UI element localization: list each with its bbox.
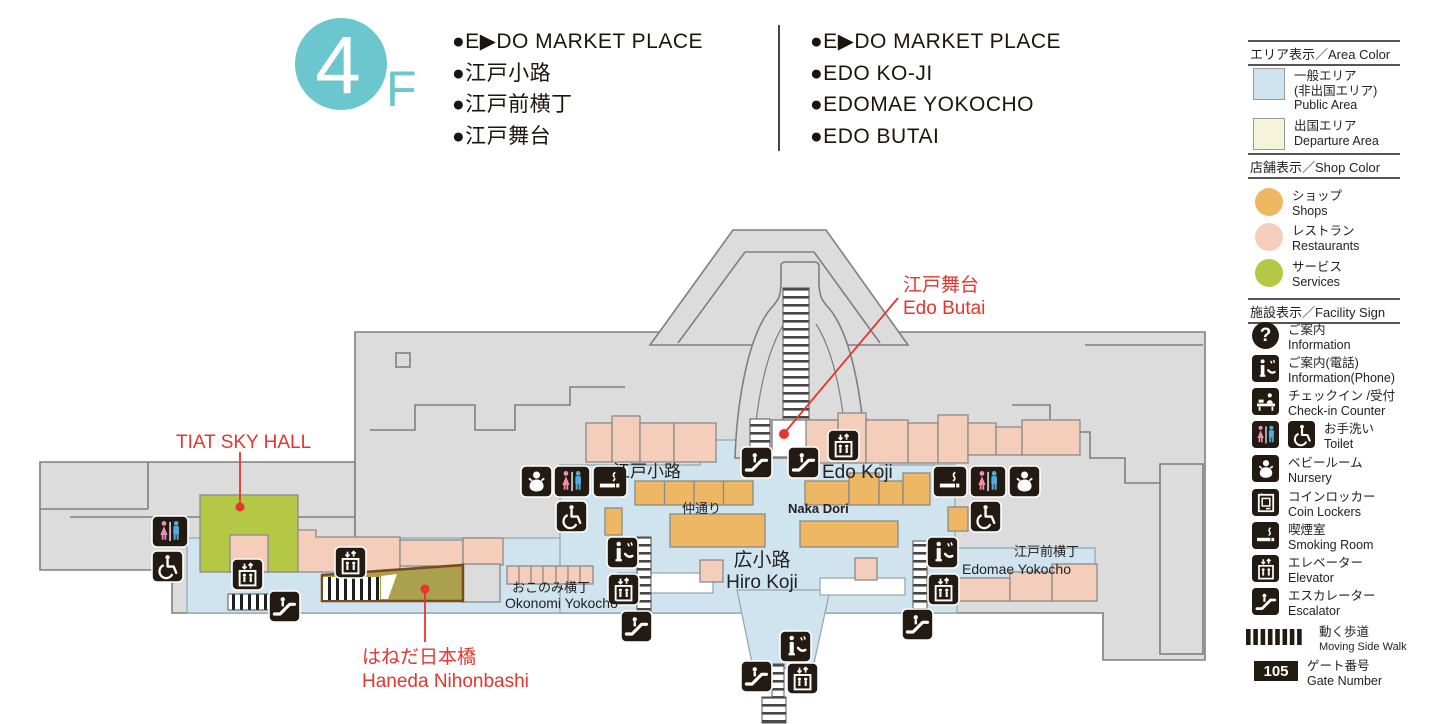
- legend-label: Nursery: [1288, 471, 1363, 486]
- nursery-icon: [521, 466, 552, 497]
- legend-label: Information: [1288, 338, 1351, 353]
- label-naka-dori-en: Naka Dori: [788, 501, 849, 516]
- escalator-icon: [621, 611, 652, 642]
- information-phone-icon: [927, 537, 958, 568]
- legend-label: 一般エリア: [1294, 69, 1377, 84]
- label-naka-dori-ja: 仲通り: [682, 501, 721, 516]
- legend-departure-area: 出国エリア Departure Area: [1253, 118, 1379, 150]
- toilet-icon: [152, 516, 188, 547]
- legend-label: チェックイン /受付: [1288, 389, 1395, 404]
- elevator-icon: [335, 547, 366, 578]
- toilet-icon: [1252, 421, 1279, 448]
- escalator-icon: [902, 609, 933, 640]
- elevator-icon: [828, 430, 859, 461]
- label-okonomi-en: Okonomi Yokocho: [505, 595, 618, 611]
- legend-label: 喫煙室: [1288, 523, 1373, 538]
- header-list-ja: ●E▶DO MARKET PLACE ●江戸小路 ●江戸前横丁 ●江戸舞台: [452, 26, 703, 152]
- callout-nihonbashi-ja: はねだ日本橋: [362, 646, 476, 668]
- legend-toilet: お手洗い Toilet: [1252, 421, 1374, 451]
- toilet-icon: [970, 466, 1006, 497]
- information-phone-icon: [1252, 355, 1279, 382]
- label-hiro-koji-en: Hiro Koji: [726, 572, 798, 593]
- callout-nihonbashi-en: Haneda Nihonbashi: [362, 671, 529, 692]
- label-okonomi-ja: おこのみ横丁: [512, 580, 590, 595]
- legend-label: Information(Phone): [1288, 371, 1395, 386]
- departure-area-swatch: [1253, 118, 1285, 150]
- legend-sidebar: エリア表示／Area Color 一般エリア (非出国エリア) Public A…: [1246, 0, 1440, 724]
- legend-label: Escalator: [1288, 604, 1376, 619]
- escalator-icon: [741, 447, 772, 478]
- legend-label: Shops: [1292, 204, 1342, 219]
- escalator-icon: [788, 447, 819, 478]
- legend-label: Departure Area: [1294, 134, 1379, 149]
- floor-map-page: 4 F ●E▶DO MARKET PLACE ●江戸小路 ●江戸前横丁 ●江戸舞…: [0, 0, 1440, 724]
- legend-elevator: エレベーター Elevator: [1252, 555, 1363, 585]
- legend-coin-lockers: コインロッカー Coin Lockers: [1252, 489, 1376, 519]
- coin-locker-icon: [1252, 489, 1279, 516]
- legend-label: Restaurants: [1292, 239, 1359, 254]
- legend-check-in: チェックイン /受付 Check-in Counter: [1252, 388, 1395, 418]
- public-area-swatch: [1253, 68, 1285, 100]
- legend-label: Coin Lockers: [1288, 505, 1376, 520]
- bridge-moving-walk: [323, 577, 380, 600]
- moving-walk-icon: [1246, 629, 1310, 645]
- legend-nursery: ベビールーム Nursery: [1252, 455, 1363, 485]
- stairs-left: [637, 537, 651, 615]
- information-phone-icon: [780, 631, 811, 662]
- floor-suffix: F: [386, 61, 417, 117]
- shops-dot: [1255, 188, 1283, 216]
- elevator-icon: [787, 663, 818, 694]
- header-item: ●江戸舞台: [452, 121, 703, 153]
- legend-label: Smoking Room: [1288, 538, 1373, 553]
- check-in-icon: [1252, 388, 1279, 415]
- legend-label: 出国エリア: [1294, 119, 1379, 134]
- gate-number-icon: 105: [1254, 661, 1298, 681]
- toilet-icon: [554, 466, 590, 497]
- legend-label: エレベーター: [1288, 556, 1363, 571]
- legend-label: Check-in Counter: [1288, 404, 1395, 419]
- restaurants-dot: [1255, 223, 1283, 251]
- accessible-toilet-icon: [152, 551, 183, 582]
- floor-badge: 4 F: [287, 14, 422, 119]
- legend-label: ベビールーム: [1288, 456, 1363, 471]
- header-item: ●江戸前横丁: [452, 89, 703, 121]
- legend-information: ? ご案内 Information: [1252, 322, 1351, 352]
- header-item: ●EDOMAE YOKOCHO: [810, 89, 1061, 121]
- stairs-stem: [772, 664, 784, 698]
- information-phone-icon: [607, 537, 638, 568]
- stairs-right: [913, 541, 927, 613]
- header-list-en: ●E▶DO MARKET PLACE ●EDO KO-JI ●EDOMAE YO…: [810, 26, 1061, 152]
- legend-public-area: 一般エリア (非出国エリア) Public Area: [1253, 68, 1377, 113]
- legend-facility-title: 施設表示／Facility Sign: [1248, 298, 1400, 324]
- header-item: ●EDO KO-JI: [810, 58, 1061, 90]
- header-item: ●E▶DO MARKET PLACE: [452, 26, 703, 58]
- accessible-toilet-icon: [1288, 421, 1315, 448]
- small-structure: [396, 353, 410, 367]
- legend-restaurants: レストラン Restaurants: [1255, 223, 1359, 253]
- legend-label: ご案内(電話): [1288, 356, 1395, 371]
- legend-label: レストラン: [1292, 224, 1359, 239]
- label-edomae-en: Edomae Yokocho: [962, 561, 1071, 577]
- legend-information-phone: ご案内(電話) Information(Phone): [1252, 355, 1395, 385]
- legend-label: サービス: [1292, 260, 1342, 275]
- walkway-left: [228, 594, 272, 610]
- callout-tiat-sky-hall: TIAT SKY HALL: [176, 432, 311, 453]
- header-divider: [778, 25, 780, 151]
- accessible-toilet-icon: [556, 501, 587, 532]
- legend-label: ご案内: [1288, 323, 1351, 338]
- floor-map: 江戸小路 Edo Koji 仲通り Naka Dori 広小路 Hiro Koj…: [30, 220, 1245, 724]
- legend-label: Moving Side Walk: [1319, 640, 1407, 655]
- nursery-icon: [1009, 466, 1040, 497]
- callout-edo-butai-en: Edo Butai: [903, 298, 985, 319]
- legend-label: Gate Number: [1307, 674, 1382, 689]
- legend-smoking-room: 喫煙室 Smoking Room: [1252, 522, 1373, 552]
- legend-label: (非出国エリア): [1294, 84, 1377, 99]
- legend-label: コインロッカー: [1288, 490, 1376, 505]
- escalator-icon: [741, 661, 772, 692]
- callout-edo-butai-ja: 江戸舞台: [903, 274, 979, 296]
- information-icon: ?: [1252, 322, 1279, 349]
- accessible-toilet-icon: [970, 501, 1001, 532]
- legend-services: サービス Services: [1255, 259, 1342, 289]
- legend-label: ショップ: [1292, 189, 1342, 204]
- header-item: ●江戸小路: [452, 58, 703, 90]
- label-edo-koji-ja: 江戸小路: [613, 462, 681, 481]
- stairs-bottom: [762, 697, 786, 723]
- escalator-icon: [1252, 588, 1279, 615]
- legend-area-title: エリア表示／Area Color: [1248, 40, 1400, 66]
- legend-label: 動く歩道: [1319, 625, 1407, 640]
- legend-label: エスカレーター: [1288, 589, 1376, 604]
- label-edo-koji-en: Edo Koji: [822, 462, 893, 483]
- elevator-icon: [232, 559, 263, 590]
- nursery-icon: [1252, 455, 1279, 482]
- header-item: ●EDO BUTAI: [810, 121, 1061, 153]
- legend-gate-number: 105 ゲート番号 Gate Number: [1254, 658, 1382, 688]
- legend-shop-title: 店舗表示／Shop Color: [1248, 153, 1400, 179]
- legend-label: Elevator: [1288, 571, 1363, 586]
- label-hiro-koji-ja: 広小路: [733, 549, 790, 571]
- legend-escalator: エスカレーター Escalator: [1252, 588, 1376, 618]
- smoking-room-icon: [1252, 522, 1279, 549]
- bridge-column: [462, 564, 500, 602]
- escalator-icon: [269, 591, 300, 622]
- legend-moving-walk: 動く歩道 Moving Side Walk: [1246, 624, 1407, 654]
- floor-number: 4: [315, 20, 361, 111]
- header-item: ●E▶DO MARKET PLACE: [810, 26, 1061, 58]
- smoking-room-icon: [933, 466, 967, 497]
- elevator-icon: [1252, 555, 1279, 582]
- elevator-icon: [928, 574, 959, 605]
- legend-label: お手洗い: [1324, 422, 1374, 437]
- services-dot: [1255, 259, 1283, 287]
- label-edomae-ja: 江戸前横丁: [1014, 544, 1079, 559]
- legend-label: ゲート番号: [1307, 659, 1382, 674]
- legend-label: Public Area: [1294, 98, 1377, 113]
- legend-label: Services: [1292, 275, 1342, 290]
- legend-shops: ショップ Shops: [1255, 188, 1342, 218]
- legend-label: Toilet: [1324, 437, 1374, 452]
